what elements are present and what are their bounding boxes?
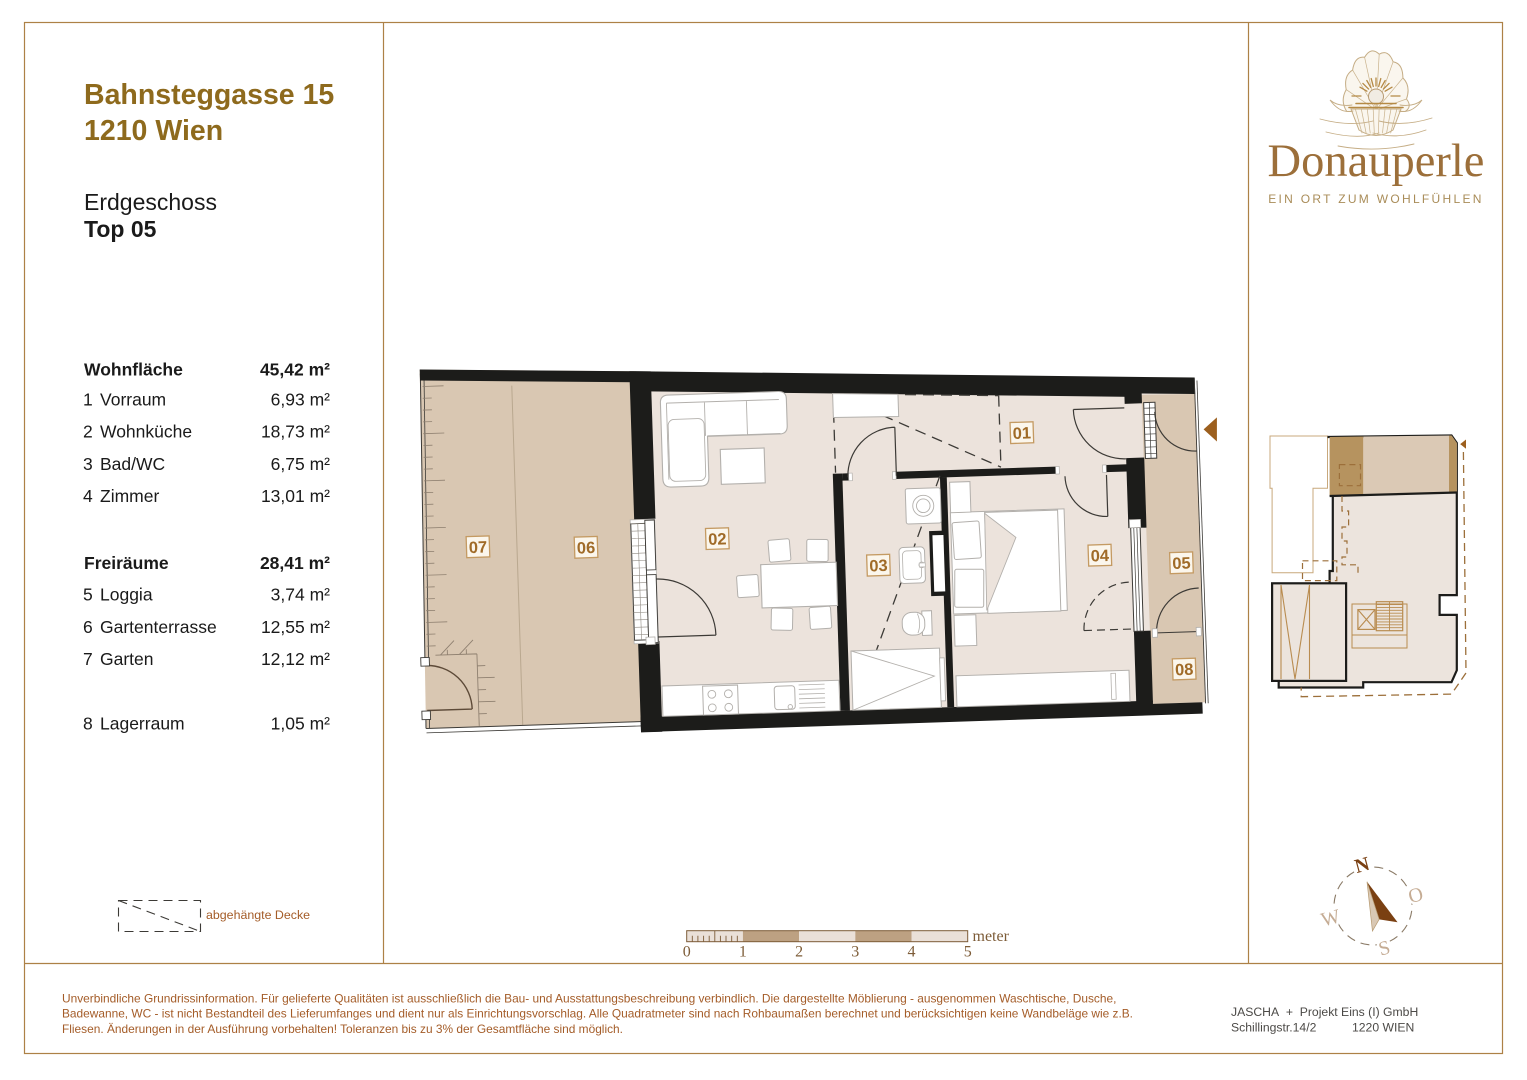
svg-text:1210 Wien: 1210 Wien (84, 115, 223, 147)
svg-text:Schillingstr.14/2: Schillingstr.14/2 (1231, 1020, 1317, 1034)
svg-text:Erdgeschoss: Erdgeschoss (84, 189, 217, 215)
svg-text:6,93 m²: 6,93 m² (271, 389, 330, 409)
svg-text:Zimmer: Zimmer (100, 486, 159, 506)
svg-text:4: 4 (83, 486, 93, 506)
svg-text:0: 0 (683, 943, 691, 960)
svg-text:1,05 m²: 1,05 m² (271, 714, 330, 734)
svg-text:EIN ORT ZUM WOHLFÜHLEN: EIN ORT ZUM WOHLFÜHLEN (1268, 192, 1484, 206)
svg-text:2: 2 (795, 943, 803, 960)
svg-text:Lagerraum: Lagerraum (100, 714, 185, 734)
svg-text:abgehängte Decke: abgehängte Decke (206, 908, 310, 922)
svg-text:Badewanne, WC - ist nicht Best: Badewanne, WC - ist nicht Bestandteil de… (62, 1007, 1133, 1021)
svg-text:4: 4 (908, 943, 916, 960)
svg-text:Bad/WC: Bad/WC (100, 454, 165, 474)
svg-text:03: 03 (869, 557, 888, 576)
svg-text:Bahnsteggasse 15: Bahnsteggasse 15 (84, 79, 334, 111)
svg-text:02: 02 (708, 530, 727, 549)
svg-text:Freiräume: Freiräume (84, 553, 169, 573)
svg-text:3: 3 (851, 943, 859, 960)
svg-text:3: 3 (83, 454, 93, 474)
svg-text:Loggia: Loggia (100, 585, 153, 605)
svg-text:Gartenterrasse: Gartenterrasse (100, 617, 217, 637)
svg-text:45,42 m²: 45,42 m² (260, 360, 330, 380)
svg-text:12,55 m²: 12,55 m² (261, 617, 330, 637)
svg-text:5: 5 (83, 585, 93, 605)
svg-text:2: 2 (83, 422, 93, 442)
svg-text:5: 5 (964, 943, 972, 960)
svg-text:JASCHA + Projekt Eins (I) Gm: JASCHA + Projekt Eins (I) GmbH (1231, 1005, 1418, 1019)
svg-text:1: 1 (739, 943, 747, 960)
svg-text:12,12 m²: 12,12 m² (261, 649, 330, 669)
svg-text:07: 07 (469, 538, 488, 557)
svg-text:Top 05: Top 05 (84, 216, 157, 242)
svg-text:13,01 m²: 13,01 m² (261, 486, 330, 506)
svg-text:Garten: Garten (100, 649, 154, 669)
svg-text:1220 WIEN: 1220 WIEN (1352, 1020, 1414, 1034)
svg-text:6,75 m²: 6,75 m² (271, 454, 330, 474)
svg-text:3,74 m²: 3,74 m² (271, 585, 330, 605)
svg-text:6: 6 (83, 617, 93, 637)
svg-text:Unverbindliche Grundrissinform: Unverbindliche Grundrissinformation. Für… (62, 991, 1116, 1005)
svg-text:8: 8 (83, 714, 93, 734)
svg-text:1: 1 (83, 389, 93, 409)
svg-text:Fliesen. Änderungen in der Aus: Fliesen. Änderungen in der Ausführung vo… (62, 1022, 623, 1036)
svg-text:7: 7 (83, 649, 93, 669)
svg-text:Vorraum: Vorraum (100, 389, 166, 409)
svg-text:06: 06 (577, 539, 596, 558)
svg-text:08: 08 (1175, 661, 1194, 680)
svg-text:Wohnfläche: Wohnfläche (84, 360, 183, 380)
svg-text:05: 05 (1172, 554, 1191, 573)
svg-text:Wohnküche: Wohnküche (100, 422, 192, 442)
svg-text:01: 01 (1012, 424, 1031, 443)
svg-text:meter: meter (973, 928, 1010, 945)
svg-text:Donauperle: Donauperle (1268, 136, 1485, 187)
svg-text:04: 04 (1090, 547, 1110, 566)
svg-text:18,73 m²: 18,73 m² (261, 422, 330, 442)
svg-text:28,41 m²: 28,41 m² (260, 553, 330, 573)
